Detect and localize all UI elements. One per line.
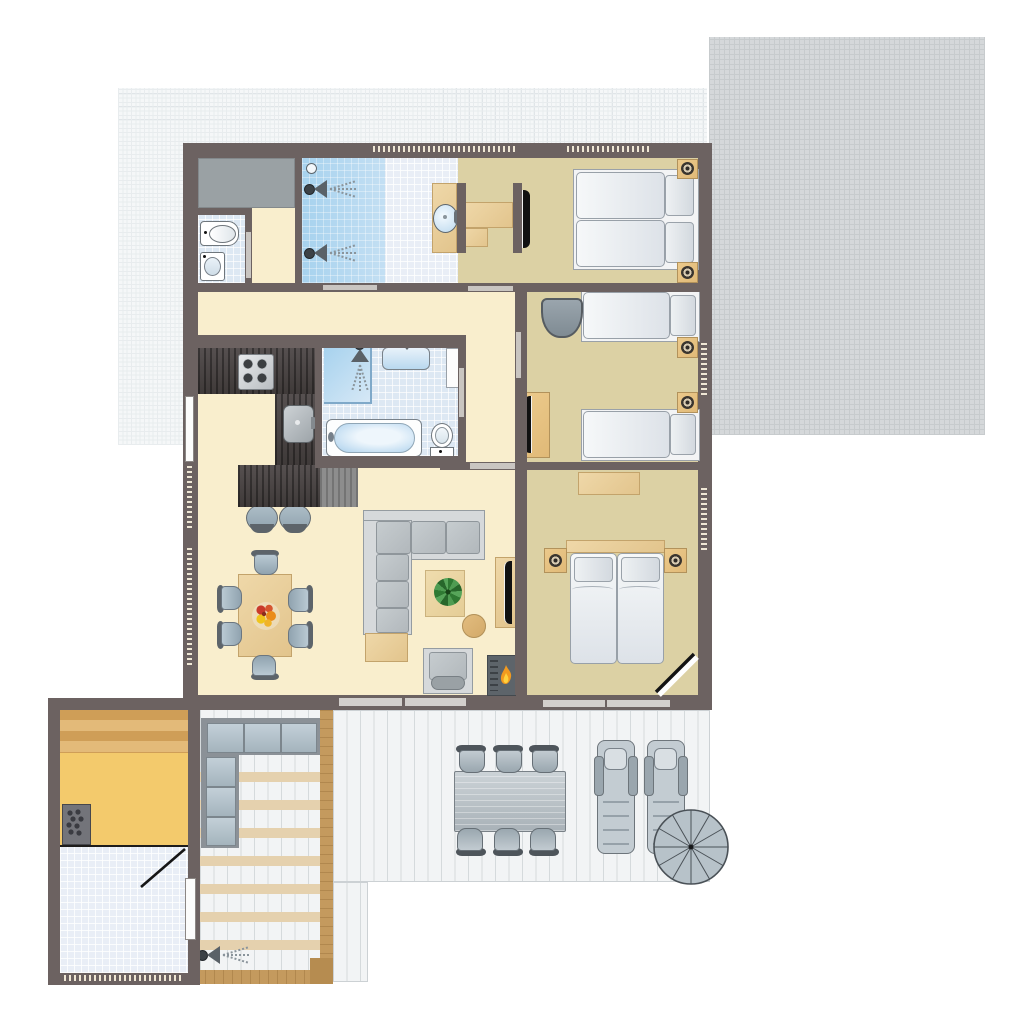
door-hall-living (470, 463, 515, 469)
sofa-end-table (365, 633, 408, 662)
annex-wall (48, 698, 60, 985)
veranda-wood-post (310, 958, 333, 984)
dining-chair (289, 620, 313, 650)
spiral-staircase (652, 808, 730, 886)
washbasin-dot (443, 215, 447, 219)
lamp (549, 554, 562, 567)
wall (513, 183, 522, 253)
flame-icon (499, 664, 513, 686)
wall (515, 470, 527, 695)
dining-chair (250, 656, 280, 680)
lamp (669, 554, 682, 567)
lamp (681, 341, 694, 354)
bench-cushion (206, 757, 236, 787)
entrance-door-swing (650, 648, 700, 698)
outdoor-chair (528, 745, 560, 772)
fruit-bowl (251, 601, 281, 631)
window-left-wall (185, 396, 194, 462)
outdoor-chair (492, 829, 524, 856)
pillow (574, 557, 613, 582)
terrace-deck-strip (333, 882, 368, 982)
bench-cushion (244, 723, 281, 753)
dining-chair (250, 550, 280, 574)
sauna-door-swing (136, 846, 188, 890)
dining-chair (289, 584, 313, 614)
outdoor-chair (455, 745, 487, 772)
wall (527, 462, 712, 470)
hand-basin (200, 252, 225, 281)
dining-chair (217, 584, 241, 614)
window-vent-top (373, 146, 518, 152)
mattress (583, 411, 670, 458)
window-terrace (339, 698, 402, 706)
bar-stool (246, 504, 278, 532)
door-toilet (246, 232, 251, 278)
outdoor-shower-icon (197, 942, 249, 968)
stove (238, 354, 274, 390)
desk (463, 202, 513, 228)
window-vent-right (701, 340, 707, 395)
toilet (200, 221, 239, 246)
sauna-heater-stones (64, 808, 87, 839)
dining-chair (217, 620, 241, 650)
veranda-beam (200, 912, 320, 922)
wall (198, 208, 252, 215)
bathtub (326, 419, 422, 457)
sofa-cushion (411, 521, 446, 554)
blanket-fold (619, 586, 660, 593)
pillow (670, 414, 696, 455)
storage-closet (198, 158, 295, 208)
blanket-fold (572, 586, 613, 593)
door-bathroom (459, 368, 464, 417)
bench-cushion (207, 723, 244, 753)
window-vent-right (701, 487, 707, 550)
window-terrace (607, 700, 670, 707)
veranda-beam (200, 884, 320, 894)
mattress (576, 172, 665, 219)
sofa-cushion (376, 581, 409, 608)
sofa-cushion (376, 608, 409, 633)
rain-shower-icon (304, 240, 356, 266)
veranda-beam (200, 856, 320, 866)
sun-lounger (597, 740, 635, 854)
bench-cushion (206, 787, 236, 817)
lamp (681, 266, 694, 279)
mattress (576, 220, 665, 267)
bench-cushion (206, 817, 236, 846)
window-vent-top (567, 146, 652, 152)
pillow (665, 175, 694, 216)
veranda-door (185, 878, 196, 940)
outdoor-chair (528, 829, 560, 856)
bathroom-toilet (429, 423, 454, 458)
window-vent-left (187, 548, 192, 665)
annex-vent (64, 975, 182, 981)
shower-mount (306, 163, 317, 174)
window-terrace (543, 700, 605, 707)
annex-wall (48, 698, 200, 710)
door-shower-room (323, 285, 377, 290)
patio-dark-grid (709, 37, 985, 435)
sofa-cushion (376, 554, 409, 581)
sofa-cushion (376, 521, 411, 554)
outdoor-chair (455, 829, 487, 856)
mattress (583, 292, 670, 339)
lounge-chair (423, 648, 473, 694)
bench-cushion (281, 723, 317, 753)
lamp (681, 162, 694, 175)
sink-dot (295, 420, 300, 425)
window-terrace (405, 698, 466, 706)
wall (315, 348, 322, 456)
headboard (566, 540, 665, 553)
wall (198, 335, 466, 348)
bathroom-washbasin (382, 347, 430, 370)
desk-return (463, 228, 488, 247)
veranda-wood-border (320, 710, 333, 972)
outdoor-dining-table (454, 771, 566, 832)
door-bedroom1 (468, 286, 513, 291)
door-bedroom2 (516, 332, 521, 378)
dresser (578, 472, 640, 495)
sofa-cushion (446, 521, 480, 554)
lamp (681, 396, 694, 409)
side-table (462, 614, 486, 638)
window-vent-left (187, 465, 192, 528)
floor-plan-canvas (0, 0, 1024, 1024)
pillow (621, 557, 660, 582)
pillow (665, 222, 694, 263)
tv (504, 561, 512, 624)
wall (198, 283, 712, 292)
bar-stool (279, 504, 311, 532)
wall (295, 158, 302, 292)
plant (434, 578, 462, 606)
pillow (670, 295, 696, 336)
wall (457, 183, 466, 253)
fireplace (487, 655, 516, 696)
outdoor-chair (492, 745, 524, 772)
wall (515, 292, 527, 470)
rain-shower-icon (304, 176, 356, 202)
wall-tv-bedroom1 (522, 190, 530, 248)
kitchen-island-end (320, 465, 358, 507)
sauna-bench (60, 710, 188, 753)
